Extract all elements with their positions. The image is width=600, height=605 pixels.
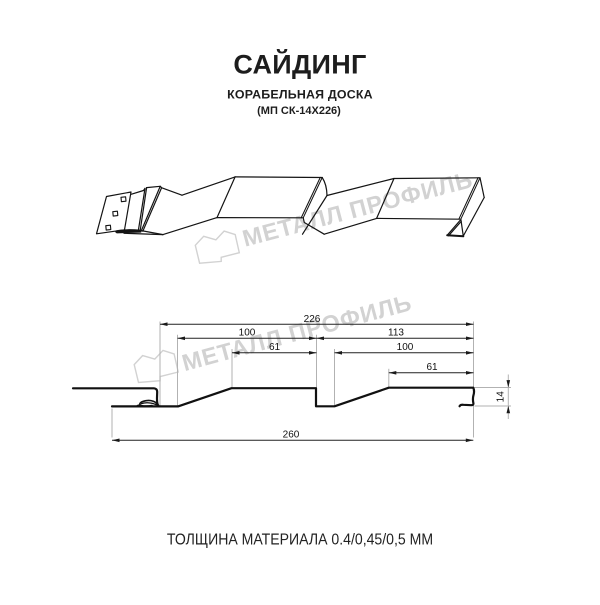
svg-text:113: 113 xyxy=(388,327,404,338)
svg-text:14: 14 xyxy=(496,391,507,403)
svg-text:100: 100 xyxy=(239,327,256,338)
svg-text:61: 61 xyxy=(426,362,438,373)
svg-text:100: 100 xyxy=(397,342,414,353)
svg-text:226: 226 xyxy=(304,314,321,325)
svg-text:САЙДИНГ: САЙДИНГ xyxy=(233,49,366,80)
svg-text:(МП СК-14Х226): (МП СК-14Х226) xyxy=(257,105,341,117)
svg-text:260: 260 xyxy=(283,429,300,440)
svg-text:КОРАБЕЛЬНАЯ ДОСКА: КОРАБЕЛЬНАЯ ДОСКА xyxy=(227,87,373,101)
svg-text:61: 61 xyxy=(269,342,281,353)
svg-text:ТОЛЩИНА МАТЕРИАЛА 0.4/0,45/0,5: ТОЛЩИНА МАТЕРИАЛА 0.4/0,45/0,5 ММ xyxy=(167,531,433,549)
